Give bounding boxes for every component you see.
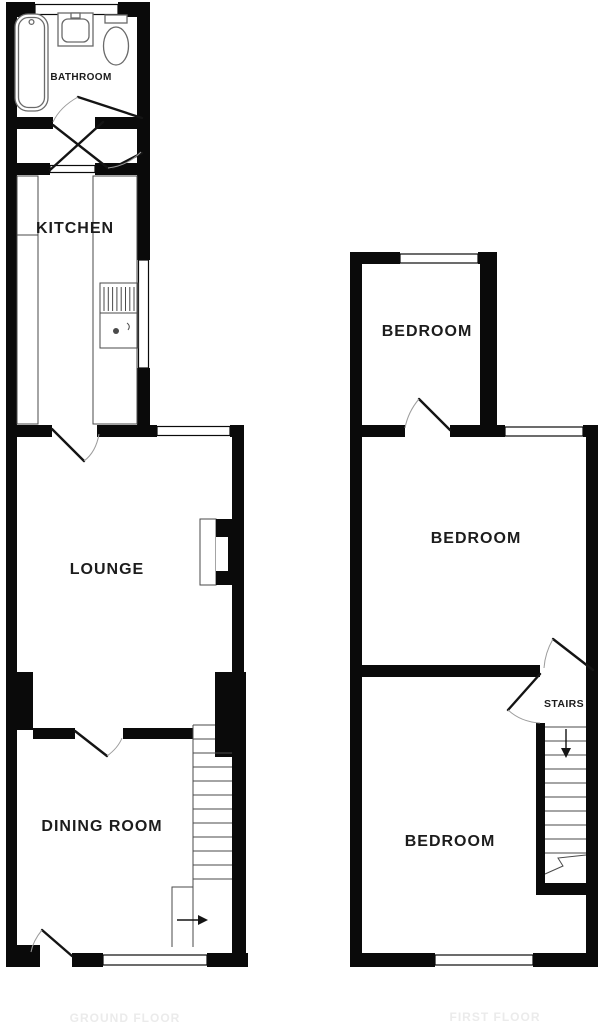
hall-doorway (50, 166, 95, 173)
bathroom-label: BATHROOM (50, 72, 111, 83)
first-floor-plan: BEDROOM BEDROOM STAIRS BEDROOM FIRST FLO… (350, 252, 598, 1024)
bedroom-back-label: BEDROOM (405, 833, 496, 850)
ground-floor-caption: GROUND FLOOR (70, 1011, 181, 1024)
ground-floor-stairs (172, 725, 232, 947)
drain-icon (113, 328, 119, 334)
first-floor-walls (350, 252, 598, 967)
ground-floor-plan: BATHROOM KITCHEN LOUNGE DINING ROOM GROU… (6, 2, 248, 1024)
toilet-cistern-icon (105, 15, 127, 23)
toilet-icon (104, 27, 129, 65)
kitchen-label: KITCHEN (36, 220, 114, 237)
landing-doors (508, 639, 593, 723)
floorplan-page: BATHROOM KITCHEN LOUNGE DINING ROOM GROU… (0, 0, 600, 1024)
bathroom-fixtures (15, 13, 129, 111)
lounge-label: LOUNGE (70, 561, 144, 578)
stairs-break-line (545, 855, 586, 874)
dining-room-label: DINING ROOM (41, 818, 162, 835)
bedroom-front-door (405, 399, 450, 430)
sink-tap-icon (71, 13, 80, 18)
dining-window (103, 955, 207, 965)
kitchen-sink-unit (100, 283, 138, 348)
lounge-window (157, 427, 230, 436)
floorplan-drawing: BATHROOM KITCHEN LOUNGE DINING ROOM GROU… (0, 0, 600, 1024)
bathroom-door (50, 97, 142, 170)
kitchen-lounge-door (52, 429, 99, 461)
kitchen-window (139, 260, 149, 368)
bedroom-middle-window (505, 427, 583, 436)
lounge-dining-door (75, 731, 122, 756)
bedroom-middle-label: BEDROOM (431, 530, 522, 547)
kitchen-fixtures (17, 176, 138, 424)
first-floor-caption: FIRST FLOOR (450, 1010, 541, 1024)
bedroom-front-label: BEDROOM (382, 323, 473, 340)
bedroom-back-window (435, 955, 533, 965)
stairs-label: STAIRS (544, 698, 584, 710)
first-floor-stairs (545, 727, 586, 874)
bedroom-front-window (400, 254, 478, 263)
kitchen-counter-left (17, 176, 38, 424)
lounge-fireplace (200, 519, 238, 585)
bath-tap-icon (29, 20, 34, 25)
